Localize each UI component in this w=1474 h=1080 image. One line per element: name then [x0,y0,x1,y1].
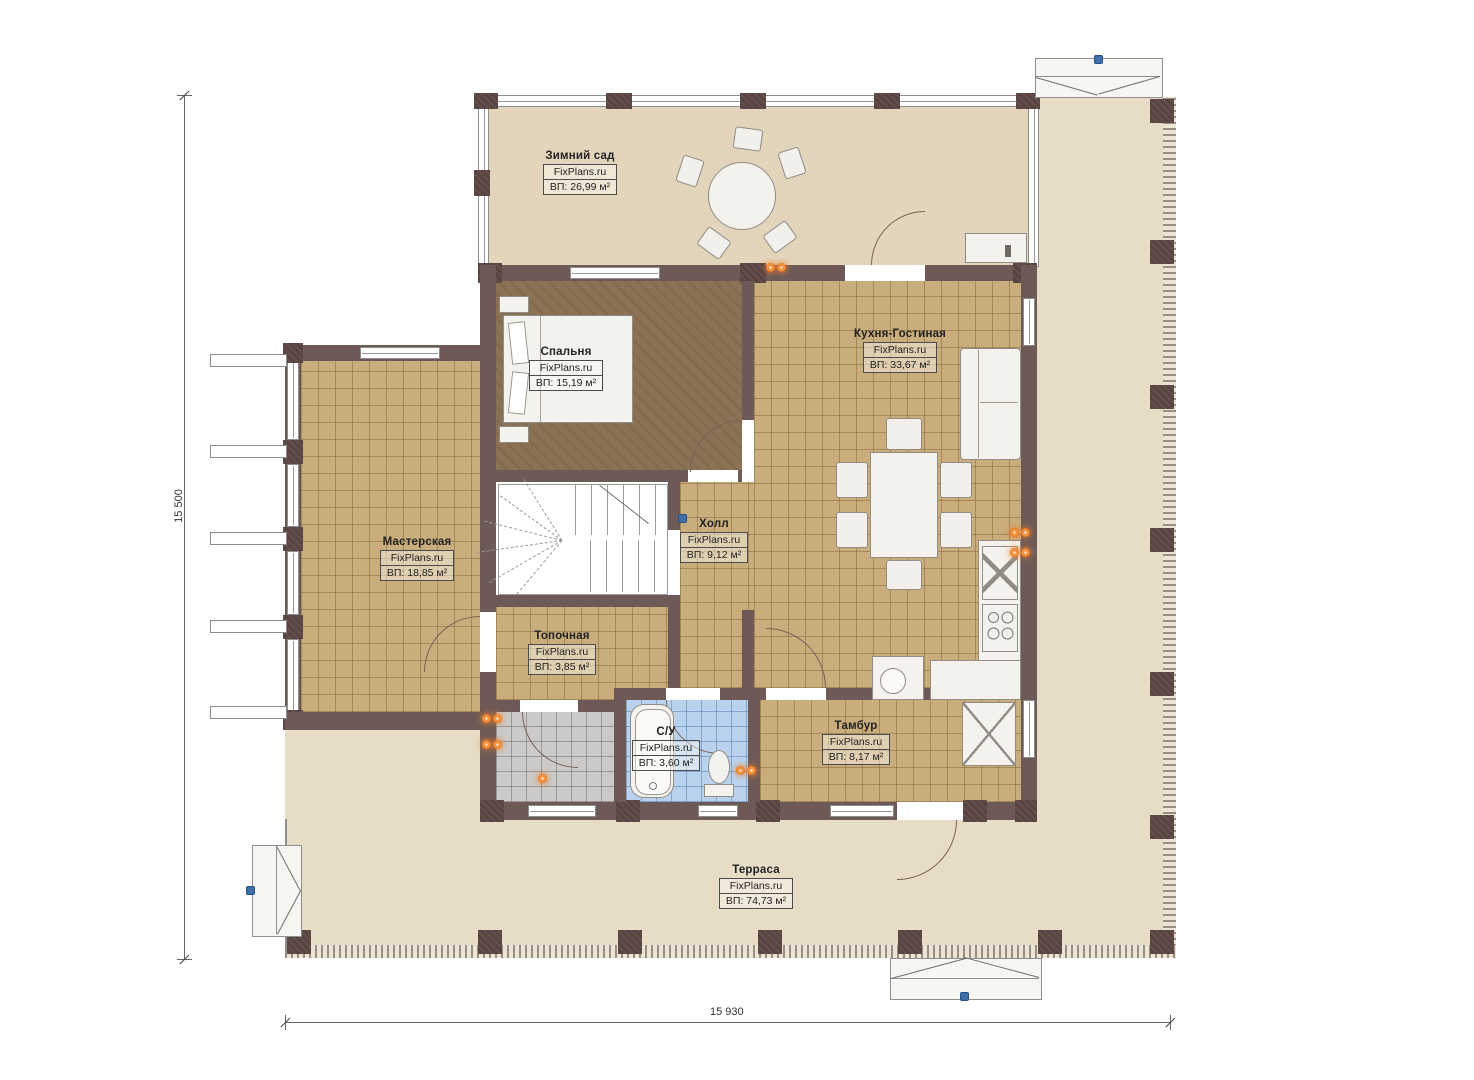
steps-left-line [276,846,277,934]
steps-left [252,845,302,937]
terrace-column [1150,930,1174,954]
room-name: Тамбур [818,720,894,732]
stove-burners [988,612,999,623]
room-name: Топочная [524,630,600,642]
room-area: ВП: 15,19 м² [530,375,602,390]
room-area: ВП: 3,60 м² [633,755,699,770]
room-info-box: FixPlans.ru ВП: 8,17 м² [822,734,890,765]
workshop-window-3 [287,551,299,615]
wall-pier [606,93,632,109]
room-name: Терраса [716,864,796,876]
outlet-marker [538,774,547,783]
sofa-cushion-line [980,402,1018,403]
chair [836,462,868,498]
room-label-bedroom: Спальня FixPlans.ru ВП: 15,19 м² [510,346,622,391]
wall-pier [874,93,900,109]
workshop-top-window [360,347,440,359]
room-info-box: FixPlans.ru ВП: 15,19 м² [529,360,603,391]
wall-stairs-bottom [496,595,680,607]
steps-entrance-line [891,978,1039,979]
room-area: ВП: 26,99 м² [544,179,616,194]
terrace-column [1150,99,1174,123]
room-brand: FixPlans.ru [823,735,889,749]
room-label-terrace: Терраса FixPlans.ru ВП: 74,73 м² [716,864,796,909]
wall-workshop-bottom [285,712,496,730]
wall-pier [740,93,766,109]
outlet-marker [736,766,756,775]
terrace-column [1150,672,1174,696]
closet [962,702,1016,766]
room-info-box: FixPlans.ru ВП: 18,85 м² [380,550,454,581]
wall-pier [1015,800,1037,822]
terrace-column [478,930,502,954]
outlet-marker [766,263,786,272]
wall-house-left [480,265,496,820]
marker-blue [960,992,969,1001]
workshop-window-1 [287,361,299,440]
room-brand: FixPlans.ru [720,879,792,893]
room-info-box: FixPlans.ru ВП: 3,85 м² [528,644,596,675]
terrace-column [1150,815,1174,839]
room-label-bathroom: С/У FixPlans.ru ВП: 3,60 м² [628,726,704,771]
outlet-marker [1010,548,1030,557]
wall-bathroom-vestibule [748,688,760,802]
dimension-line-left [184,95,185,960]
window-sill [210,706,287,719]
stove [982,604,1018,652]
terrace-column [1038,930,1062,954]
room-area: ВП: 33,67 м² [864,357,936,372]
marker-blue [246,886,255,895]
outlet-marker [1010,528,1030,537]
room-label-winter-garden: Зимний сад FixPlans.ru ВП: 26,99 м² [516,150,644,195]
room-label-kitchen-living: Кухня-Гостиная FixPlans.ru ВП: 33,67 м² [830,328,970,373]
wall-boiler-hall [668,595,680,700]
room-brand: FixPlans.ru [381,551,453,565]
wall-pier [474,170,490,196]
nightstand [499,426,529,443]
wall-hall-kitchen [742,610,754,688]
kitchen-counter-lower [930,660,1021,700]
toilet-tank [704,784,734,797]
room-brand: FixPlans.ru [529,645,595,659]
bathroom-door-opening [666,688,720,700]
winter-garden-door-opening [845,265,925,281]
dimension-line-bottom [285,1022,1170,1023]
floor-plan-canvas: Зимний сад FixPlans.ru ВП: 26,99 м² Спал… [0,0,1474,1080]
chair [940,512,972,548]
workshop-door-opening [480,612,496,672]
room-area: ВП: 8,17 м² [823,749,889,764]
dining-table [870,452,938,558]
chair [886,560,922,590]
dishwasher-dial [880,668,906,694]
washbasin [965,233,1027,263]
wall-pier [756,800,780,822]
room-name: Спальня [510,346,622,358]
nightstand [499,296,529,313]
dimension-bottom-label: 15 930 [710,1006,744,1018]
room-area: ВП: 18,85 м² [381,565,453,580]
terrace-right-floor [1037,97,1163,945]
stair-treads-upper [575,485,667,535]
room-label-workshop: Мастерская FixPlans.ru ВП: 18,85 м² [356,536,478,581]
kitchen-right-window [1023,298,1035,346]
wall-pier [616,800,640,822]
window-sill [210,354,287,367]
vestibule-bottom-window [830,805,894,817]
chair [836,512,868,548]
room-brand: FixPlans.ru [681,533,747,547]
wall-bedroom-kitchen [742,281,754,420]
workshop-window-4 [287,639,299,712]
terrace-column [758,930,782,954]
room-name: Мастерская [356,536,478,548]
washbasin-faucet [1005,245,1011,257]
terrace-column [898,930,922,954]
room-info-box: FixPlans.ru ВП: 9,12 м² [680,532,748,563]
room-name: Холл [676,518,752,530]
terrace-column [1150,240,1174,264]
stair-treads-lower [590,540,667,592]
room-brand: FixPlans.ru [530,361,602,375]
room-info-box: FixPlans.ru ВП: 33,67 м² [863,342,937,373]
steps-top-line [1036,76,1160,77]
terrace-column [618,930,642,954]
wall-pier [740,263,766,283]
bedroom-top-window [570,267,660,279]
bathroom-bottom-window [698,805,738,817]
room-info-box: FixPlans.ru ВП: 26,99 м² [543,164,617,195]
chair [886,418,922,450]
marker-blue [678,514,687,523]
room-area: ВП: 74,73 м² [720,893,792,908]
room-name: С/У [628,726,704,738]
wall-pier [474,93,498,109]
outlet-marker [482,740,502,749]
room-label-boiler-room: Топочная FixPlans.ru ВП: 3,85 м² [524,630,600,675]
room-info-box: FixPlans.ru ВП: 74,73 м² [719,878,793,909]
terrace-column [1150,385,1174,409]
room-name: Зимний сад [516,150,644,162]
room-area: ВП: 9,12 м² [681,547,747,562]
room-name: Кухня-Гостиная [830,328,970,340]
window-sill [210,445,287,458]
chair [733,126,764,152]
marker-blue [1094,55,1103,64]
winter-garden-glazing-right [1028,95,1039,267]
room-brand: FixPlans.ru [633,741,699,755]
chair [940,462,972,498]
bathtub-drain [649,782,657,790]
room-info-box: FixPlans.ru ВП: 3,60 м² [632,740,700,771]
wall-pier [963,800,987,822]
vestibule-door-opening [766,688,826,700]
round-table [708,162,776,230]
workshop-window-2 [287,464,299,527]
window-sill [210,620,287,633]
toilet-bowl [708,750,730,784]
wall-bathroom-left [614,700,626,802]
vestibule-right-window [1023,700,1035,758]
room-area: ВП: 3,85 м² [529,659,595,674]
sofa-back-line [978,350,979,458]
boiler-door-opening [520,700,578,712]
terrace-left-floor [285,730,480,822]
entry-room-bottom-window [528,805,596,817]
outlet-marker [482,714,502,723]
room-label-vestibule: Тамбур FixPlans.ru ВП: 8,17 м² [818,720,894,765]
steps-top [1035,58,1163,98]
room-brand: FixPlans.ru [544,165,616,179]
room-brand: FixPlans.ru [864,343,936,357]
room-label-hall: Холл FixPlans.ru ВП: 9,12 м² [676,518,752,563]
wall-pier [480,800,504,822]
window-sill [210,532,287,545]
terrace-column [1150,528,1174,552]
dimension-left-label: 15 500 [173,489,185,523]
main-entrance-opening [897,802,963,820]
